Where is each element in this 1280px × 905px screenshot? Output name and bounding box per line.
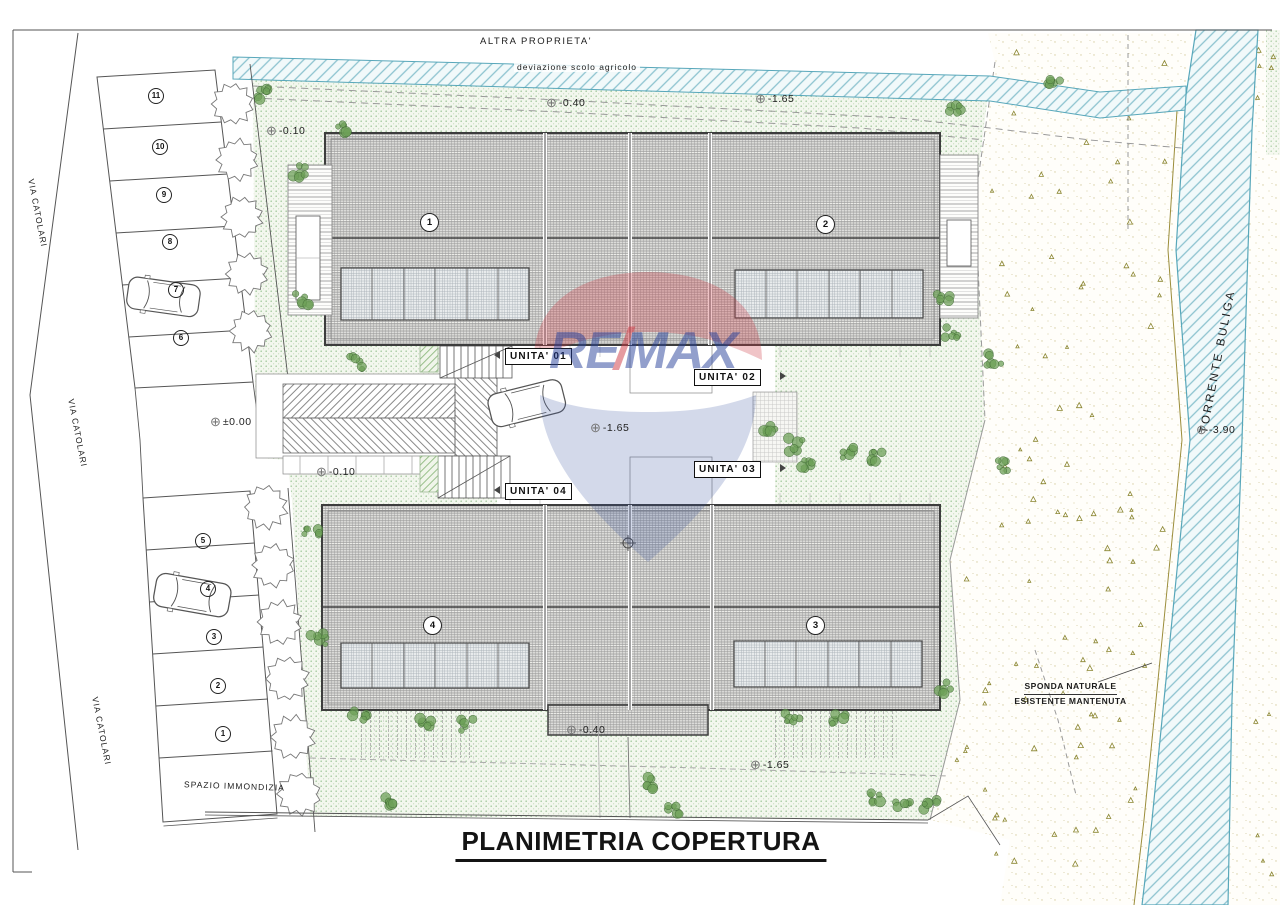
site-plan-drawing: ALTRA PROPRIETA' deviazione scolo agrico… bbox=[0, 0, 1280, 905]
crosshair-icon: ⊕ bbox=[750, 760, 761, 770]
elevation-marker: ⊕-0.10 bbox=[266, 125, 305, 137]
via-catolari-label-1: VIA CATOLARI bbox=[26, 178, 49, 248]
elevation-marker: ⊕-0.10 bbox=[316, 466, 355, 478]
unit-03-label: UNITA' 03 bbox=[694, 461, 761, 478]
unit-04-arrow-icon bbox=[494, 486, 500, 494]
unit-03-arrow-icon bbox=[780, 464, 786, 472]
spazio-immondizia-label: SPAZIO IMMONDIZIA bbox=[184, 779, 285, 793]
elevation-marker: ⊕-3.90 bbox=[1196, 424, 1235, 436]
via-catolari-label-3: VIA CATOLARI bbox=[90, 696, 113, 766]
parking-space-7: 7 bbox=[168, 282, 184, 298]
parking-space-5: 5 bbox=[195, 533, 211, 549]
elevation-marker: ⊕-0.40 bbox=[546, 97, 585, 109]
parking-space-1: 1 bbox=[215, 726, 231, 742]
altra-proprieta-label: ALTRA PROPRIETA' bbox=[480, 36, 592, 47]
parking-space-11: 11 bbox=[148, 88, 164, 104]
sponda-naturale-label: SPONDA NATURALE ESISTENTE MANTENUTA bbox=[1008, 680, 1133, 708]
torrente-buliga-label: TORRENTE BULIGA bbox=[1198, 289, 1238, 435]
crosshair-icon: ⊕ bbox=[755, 94, 766, 104]
elevation-marker: ⊕±0.00 bbox=[210, 416, 252, 428]
crosshair-icon: ⊕ bbox=[210, 417, 221, 427]
building-number-1: 1 bbox=[420, 213, 439, 232]
parking-space-8: 8 bbox=[162, 234, 178, 250]
crosshair-icon: ⊕ bbox=[266, 126, 277, 136]
remax-watermark-text: RE/MAX bbox=[549, 321, 737, 383]
unit-01-arrow-icon bbox=[494, 351, 500, 359]
parking-space-4: 4 bbox=[200, 581, 216, 597]
crosshair-icon: ⊕ bbox=[1196, 425, 1207, 435]
building-number-4: 4 bbox=[423, 616, 442, 635]
parking-space-9: 9 bbox=[156, 187, 172, 203]
unit-02-arrow-icon bbox=[780, 372, 786, 380]
annotation-layer: ALTRA PROPRIETA' deviazione scolo agrico… bbox=[0, 0, 1280, 905]
crosshair-icon: ⊕ bbox=[546, 98, 557, 108]
elevation-marker: ⊕-0.40 bbox=[566, 724, 605, 736]
crosshair-icon: ⊕ bbox=[316, 467, 327, 477]
parking-space-10: 10 bbox=[152, 139, 168, 155]
parking-space-6: 6 bbox=[173, 330, 189, 346]
building-number-3: 3 bbox=[806, 616, 825, 635]
elevation-marker: ⊕-1.65 bbox=[590, 422, 629, 434]
building-number-2: 2 bbox=[816, 215, 835, 234]
via-catolari-label-2: VIA CATOLARI bbox=[66, 398, 89, 468]
crosshair-icon: ⊕ bbox=[590, 423, 601, 433]
deviazione-scolo-label: deviazione scolo agricolo bbox=[514, 62, 640, 72]
unit-04-label: UNITA' 04 bbox=[505, 483, 572, 500]
drawing-title: PLANIMETRIA COPERTURA bbox=[455, 826, 826, 862]
parking-space-3: 3 bbox=[206, 629, 222, 645]
elevation-marker: ⊕-1.65 bbox=[755, 93, 794, 105]
elevation-marker: ⊕-1.65 bbox=[750, 759, 789, 771]
parking-space-2: 2 bbox=[210, 678, 226, 694]
crosshair-icon: ⊕ bbox=[566, 725, 577, 735]
